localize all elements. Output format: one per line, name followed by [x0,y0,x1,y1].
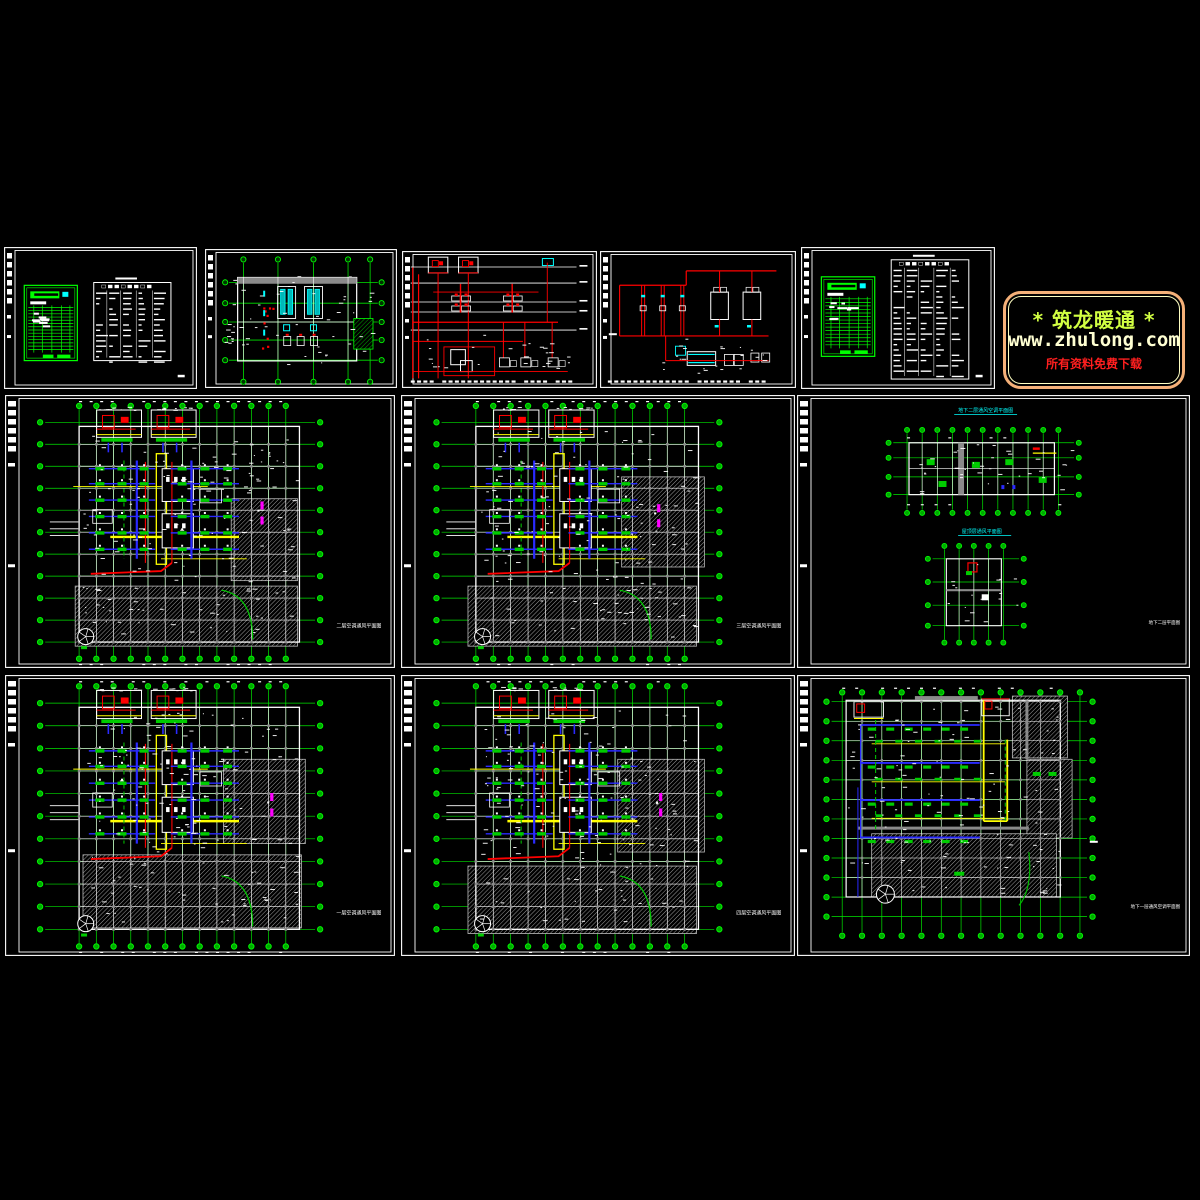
sheet-legend-right [801,247,995,389]
plan-b1-hvac: 地下一层通风空调平面图 [797,675,1190,956]
cad-drawing-canvas: 二层空调通风平面图 三层空调通风平面图 地下二层通风空调平面图屋顶层通风平面图地… [0,0,1200,1200]
svg-text:三层空调通风平面图: 三层空调通风平面图 [736,623,781,630]
zhulong-watermark: * 筑龙暖通 * www.zhulong.com 所有资料免费下载 [1003,291,1185,389]
panel-basement2-roof-plans: 地下二层通风空调平面图屋顶层通风平面图地下二层平面图 [797,395,1190,668]
svg-text:地下二层平面图: 地下二层平面图 [1149,619,1181,626]
svg-text:地下二层通风空调平面图: 地下二层通风空调平面图 [958,407,1013,414]
svg-text:四层空调通风平面图: 四层空调通风平面图 [736,909,781,916]
watermark-url-text: www.zhulong.com [1008,331,1180,351]
svg-text:一层空调通风平面图: 一层空调通风平面图 [336,909,381,916]
sheet-water-flow-diagram [600,251,796,388]
svg-text:屋顶层通风平面图: 屋顶层通风平面图 [962,528,1002,535]
svg-text:二层空调通风平面图: 二层空调通风平面图 [336,623,381,630]
watermark-brand-text: * 筑龙暖通 * [1033,310,1156,331]
plan-3f-hvac: 三层空调通风平面图 [401,395,795,668]
watermark-slogan-text: 所有资料免费下载 [1046,358,1142,371]
sheet-air-system-schematic [402,251,597,388]
sheet-legend-left [4,247,197,389]
sheet-chiller-plant-plan [205,249,397,388]
plan-1f-hvac: 一层空调通风平面图 [5,675,395,956]
plan-4f-hvac: 四层空调通风平面图 [401,675,795,956]
svg-text:地下一层通风空调平面图: 地下一层通风空调平面图 [1131,903,1181,910]
plan-2f-hvac: 二层空调通风平面图 [5,395,395,668]
zhulong-watermark-inner: * 筑龙暖通 * www.zhulong.com 所有资料免费下载 [1008,296,1180,384]
